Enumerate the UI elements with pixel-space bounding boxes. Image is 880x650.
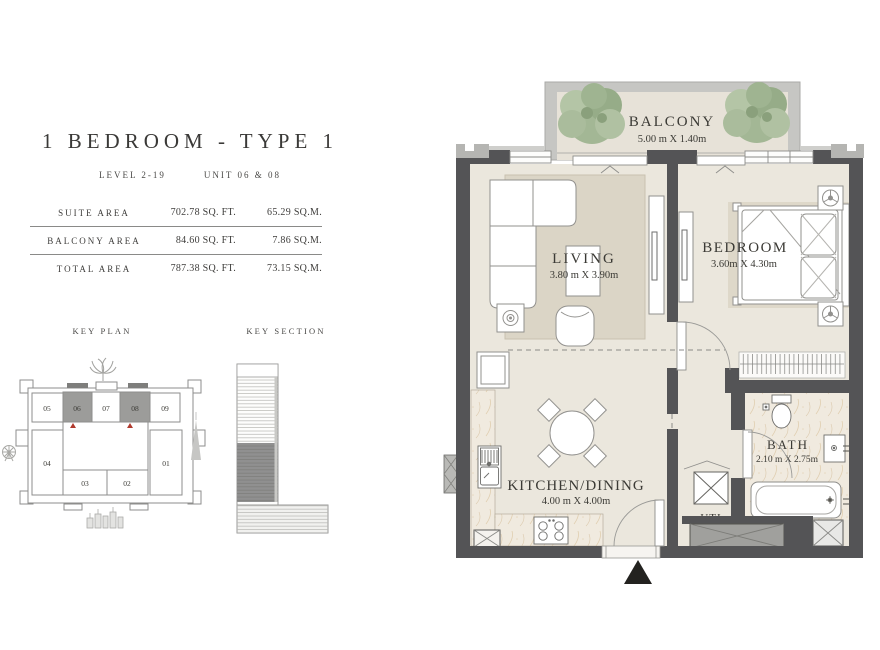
corner-shaft-box (474, 530, 500, 547)
bath-label: BATH (767, 437, 809, 452)
cooktop (534, 517, 568, 544)
vanity-sink (824, 435, 845, 462)
unit-number: 03 (81, 479, 89, 488)
pillow (801, 214, 836, 255)
entrance-threshold (602, 546, 660, 558)
key-plan-diagram: 05 06 07 08 09 04 01 03 02 (0, 352, 230, 538)
floorplan-brochure-page: 1 BEDROOM - TYPE 1 LEVEL 2-19 UNIT 06 & … (0, 0, 880, 650)
area-sqft: 787.38 SQ. FT. (158, 263, 236, 274)
area-label: BALCONY AREA (30, 236, 158, 246)
bedroom-label: BEDROOM (702, 240, 788, 256)
kitchen-dims: 4.00 m X 4.00m (542, 496, 611, 507)
area-row-balcony: BALCONY AREA 84.60 SQ. FT. 7.86 SQ.M. (30, 227, 322, 255)
balcony-dims: 5.00 m X 1.40m (638, 134, 707, 145)
area-sqm: 73.15 SQ.M. (236, 263, 322, 274)
wardrobe (739, 352, 845, 378)
building-footprint (16, 380, 205, 510)
area-sqm: 65.29 SQ.M. (236, 207, 322, 218)
plant-icon (558, 83, 625, 144)
section-podium (237, 505, 328, 533)
exterior-duct (444, 455, 458, 493)
key-plan-title: KEY PLAN (40, 326, 164, 336)
living-room: LIVING 3.80 m X 3.90m (490, 175, 664, 346)
bathtub (751, 482, 841, 518)
fridge (477, 352, 509, 388)
kitchen-sink (478, 446, 501, 488)
area-sqm: 7.86 SQ.M. (236, 235, 322, 246)
palm-tree-icon (90, 358, 116, 381)
plant-icon (723, 82, 790, 143)
exterior-ledge (488, 146, 545, 150)
nightstand (818, 186, 843, 210)
unit-number: 04 (43, 459, 51, 468)
dresser-tv-unit (679, 212, 693, 302)
key-section-title: KEY SECTION (226, 326, 346, 336)
balcony-label: BALCONY (629, 114, 716, 130)
bathroom: BATH 2.10 m X 2.75m (745, 393, 852, 520)
side-table (497, 304, 524, 332)
area-table: SUITE AREA 702.78 SQ. FT. 65.29 SQ.M. BA… (30, 199, 322, 282)
unit-number: 02 (123, 479, 131, 488)
living-dims: 3.80 m X 3.90m (550, 270, 619, 281)
area-label: SUITE AREA (30, 208, 158, 218)
window (745, 151, 813, 163)
unit-number: 05 (43, 404, 51, 413)
unit-number: 08 (131, 404, 139, 413)
key-section-diagram (228, 350, 340, 545)
unit-number: 06 (73, 404, 81, 413)
area-row-total: TOTAL AREA 787.38 SQ. FT. 73.15 SQ.M. (30, 255, 322, 282)
living-label: LIVING (552, 251, 616, 267)
kitchen-label: KITCHEN/DINING (507, 478, 644, 494)
page-title: 1 BEDROOM - TYPE 1 (40, 129, 340, 154)
level-label: LEVEL 2-19 (99, 170, 166, 180)
area-label: TOTAL AREA (30, 264, 158, 274)
armchair (556, 306, 594, 346)
shaft-hatched (690, 524, 784, 548)
area-row-suite: SUITE AREA 702.78 SQ. FT. 65.29 SQ.M. (30, 199, 322, 227)
shaft-box (813, 520, 843, 546)
window (510, 151, 551, 163)
unit-number: 01 (162, 459, 170, 468)
area-sqft: 84.60 SQ. FT. (158, 235, 236, 246)
unit-number: 07 (102, 404, 110, 413)
pillow (801, 257, 836, 298)
nightstand (818, 302, 843, 326)
water-heater (694, 472, 728, 504)
bath-dims: 2.10 m X 2.75m (756, 455, 819, 465)
headboard (842, 204, 849, 306)
tv-unit (649, 196, 664, 314)
skyline-icon (87, 507, 123, 528)
bedroom-dims: 3.60m X 4.30m (711, 259, 777, 270)
entrance-marker (624, 560, 652, 584)
unit-label: UNIT 06 & 08 (204, 170, 281, 180)
area-sqft: 702.78 SQ. FT. (158, 207, 236, 218)
unit-number: 09 (161, 404, 169, 413)
section-tower (237, 364, 278, 505)
ferris-wheel-icon (3, 446, 16, 462)
floor-plan: BALCONY 5.00 m X 1.40m (440, 55, 880, 600)
level-unit-row: LEVEL 2-19 UNIT 06 & 08 (40, 170, 340, 180)
